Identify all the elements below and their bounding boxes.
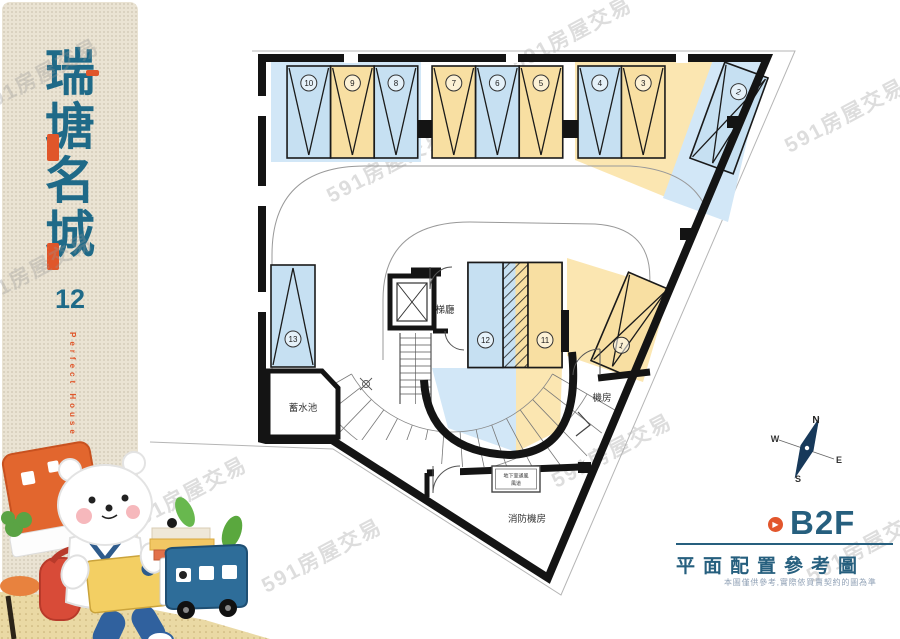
parking-stall-9: 9 <box>331 66 375 158</box>
parking-stall-6: 6 <box>476 66 520 158</box>
label-water-tank: 蓄水池 <box>289 402 318 414</box>
play-icon: ▶ <box>768 517 783 532</box>
truck-illustration <box>160 545 247 619</box>
stall-number: 3 <box>641 79 646 88</box>
compass-e: E <box>836 455 842 465</box>
parking-stall-13: 13 <box>271 265 315 367</box>
stall-number: 12 <box>481 336 490 345</box>
stall-number: 9 <box>350 79 355 88</box>
stall-number: 10 <box>304 79 313 88</box>
stall-number: 13 <box>289 335 298 344</box>
parking-stall-5: 5 <box>519 66 563 158</box>
plan-disclaimer: 本圖僅供參考,實際依買賣契約的圖為準 <box>724 577 877 588</box>
parking-stall-3: 3 <box>621 66 665 158</box>
stall-number: 5 <box>539 79 544 88</box>
plan-title: 平面配置參考圖 <box>676 551 865 578</box>
vent-shaft-box: 地下室通風 風道 <box>492 466 540 492</box>
parking-stall-4: 4 <box>578 66 622 158</box>
label-elevator-hall: 梯廳 <box>435 304 455 316</box>
parking-stall-7: 7 <box>432 66 476 158</box>
stall-number: 11 <box>541 336 550 345</box>
ramp-direction-arrow-icon <box>576 412 590 436</box>
parking-stall-8: 8 <box>374 66 418 158</box>
poster-canvas: 瑞 塘 名 城 12 Perfect House 591房屋交易 591房屋交易… <box>0 0 900 639</box>
vent-label-line1: 地下室通風 <box>503 473 528 480</box>
elevator-core <box>390 272 448 331</box>
stool-illustration <box>0 576 40 596</box>
parking-stall-10: 10 <box>287 66 331 158</box>
label-machine-room: 機房 <box>592 392 611 404</box>
stall-number: 6 <box>495 79 500 88</box>
compass: N S W E <box>771 415 842 484</box>
bear-head <box>58 465 152 545</box>
floor-label: B2F <box>790 504 855 542</box>
compass-w: W <box>771 434 780 444</box>
vent-label-line2: 風道 <box>511 480 521 487</box>
footer-divider <box>676 543 893 545</box>
bird-illustration <box>167 518 177 528</box>
stall-number: 4 <box>598 79 603 88</box>
compass-n: N <box>812 415 819 426</box>
stall-number: 7 <box>452 79 457 88</box>
stall-number: 8 <box>394 79 399 88</box>
parking-stall-12: 12 <box>468 263 503 368</box>
label-fire-machine-room: 消防機房 <box>508 513 546 525</box>
mascot-illustration <box>0 420 270 639</box>
floor-indicator: ▶ B2F <box>660 504 895 544</box>
compass-s: S <box>795 474 801 484</box>
survey-marker-icon <box>360 378 372 390</box>
parking-stall-11: 11 <box>528 263 562 368</box>
